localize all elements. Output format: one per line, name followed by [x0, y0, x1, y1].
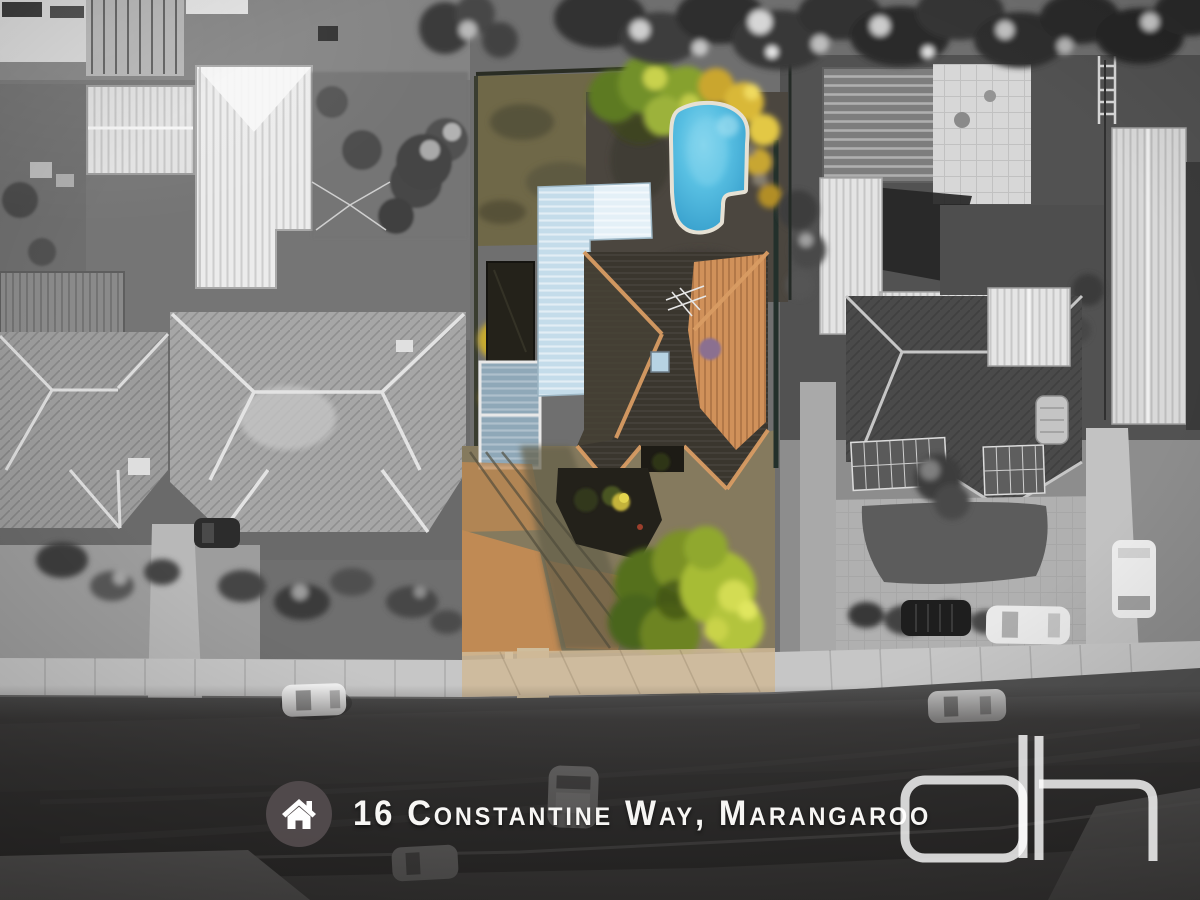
left-backyard-garden [312, 72, 468, 238]
silver-car-bottom-left [391, 844, 459, 881]
left-main-neighbour-roof [170, 312, 466, 532]
white-van-right [1112, 540, 1156, 618]
silver-car-road-right [927, 689, 1006, 724]
subject-lot [462, 54, 788, 702]
home-icon [279, 794, 319, 834]
person-dot [637, 524, 643, 530]
roof-skylight [651, 352, 669, 372]
ladder [1099, 56, 1115, 124]
home-icon-badge [266, 781, 332, 847]
logo-d-bowl [905, 780, 1023, 858]
mauve-tree-crown [699, 338, 721, 360]
garage-gable-roof [988, 288, 1070, 366]
dh-logo [895, 728, 1175, 878]
dark-suv-right [901, 600, 971, 636]
left-house-roof [0, 332, 168, 528]
right-house [846, 288, 1082, 510]
left-white-shed [87, 86, 194, 174]
side-walkway [800, 382, 836, 652]
parked-car-dark-left [194, 518, 240, 548]
property-address: 16 Constantine Way, Marangaroo [353, 781, 931, 847]
logo-h-arch [1039, 784, 1153, 861]
white-car-right [986, 605, 1071, 644]
aerial-photo: 16 Constantine Way, Marangaroo [0, 0, 1200, 900]
